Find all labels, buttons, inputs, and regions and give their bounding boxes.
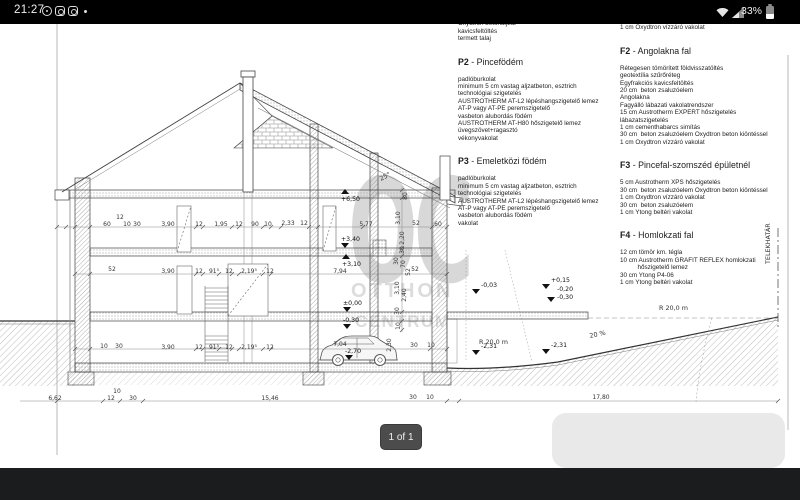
spec-section-heading: F2 - Angolakna fal <box>620 47 786 56</box>
level-marker-triangle <box>542 284 550 289</box>
dimension-label: 52 <box>108 266 116 273</box>
camera-app-notification-icon <box>55 6 65 16</box>
dimension-label: 17,80 <box>592 394 609 401</box>
level-marker-triangle <box>341 243 349 248</box>
spec-line: 30 cm beton zsaluzóelem Oxydtron beton k… <box>620 131 786 138</box>
spec-line: üvegszövet+ragasztó <box>458 127 616 134</box>
spec-line: 30 cm beton zsaluzóelem <box>620 202 786 209</box>
dimension-label: 60 <box>103 221 111 228</box>
spec-line: padlóburkolat <box>458 175 616 182</box>
dimension-label: 2,33 <box>281 220 295 227</box>
spec-line: vékonyvakolat <box>458 135 616 142</box>
level-marker-triangle <box>547 297 555 302</box>
dimension-label: 91⁵ <box>209 268 220 275</box>
level-marker-triangle <box>472 289 480 294</box>
dimension-label: 90 <box>251 221 259 228</box>
spec-line: AT-P vagy AT-PE peremszigetelő <box>458 205 616 212</box>
spec-line: geotextília szűrőréteg <box>620 72 786 79</box>
spec-line: vakolat <box>458 220 616 227</box>
spec-column-p: AT-P vagy AT-PE peremszigetelőOxydtron b… <box>458 13 616 227</box>
level-marker-label: -2,31 <box>481 343 497 350</box>
battery-icon <box>766 6 774 19</box>
spec-line: AT-P vagy AT-PE peremszigetelő <box>458 105 616 112</box>
spec-line: minimum 5 cm vastag aljzatbeton, esztric… <box>458 183 616 190</box>
spec-line: Rétegesen tömörített földvisszatöltés <box>620 65 786 72</box>
dimension-label: 7,94 <box>333 268 347 275</box>
level-marker-label: -0,20 <box>557 286 573 293</box>
dimension-label: 30 <box>393 257 400 265</box>
spec-line: 15 cm Austrotherm EXPERT hőszigetelés <box>620 109 786 116</box>
spec-section-heading: F3 - Pincefal-szomszéd épületnél <box>620 161 786 170</box>
annotation-label: 25° <box>378 170 392 182</box>
spec-line: technológiai szigetelés <box>458 90 616 97</box>
level-marker-triangle <box>343 324 351 329</box>
dimension-label: 5,77 <box>359 221 373 228</box>
spec-line: padlóburkolat <box>458 76 616 83</box>
spec-line: 1 cm Oxydtron vízzáró vakolat <box>620 139 786 146</box>
spec-line: 10 cm Austrotherm GRAFIT REFLEX homlokza… <box>620 257 786 264</box>
level-marker-triangle <box>343 307 351 312</box>
spec-line: AUSTROTHERM AT-L2 lépéshangszigetelő lem… <box>458 98 616 105</box>
dimension-label: 2,40 <box>401 288 408 302</box>
level-marker-label: +6,50 <box>341 196 360 203</box>
level-marker-label: +3,10 <box>342 261 361 268</box>
spec-section-heading: P3 - Emeletközi födém <box>458 157 616 166</box>
spec-line: AUSTROTHERM AT-L2 lépéshangszigetelő lem… <box>458 198 616 205</box>
spec-line: Egyfrakciós kavicsfeltöltés <box>620 80 786 87</box>
dimension-label: 12 <box>116 214 124 221</box>
spec-line: Angolakna <box>620 94 786 101</box>
spec-line: 30 cm beton zsaluzóelem Oxydtron beton k… <box>620 187 786 194</box>
level-marker-label: +3,40 <box>341 236 360 243</box>
spec-line: 1 cm Ytong beltéri vakolat <box>620 279 786 286</box>
spec-line: vasbeton alubordás födém <box>458 113 616 120</box>
spec-line: vasbeton alubordás födém <box>458 212 616 219</box>
spec-line: 1 cm Oxydtron vízzáró vakolat <box>620 24 786 31</box>
spec-line: hőszigetelő lemez <box>620 264 786 271</box>
dimension-label: 60 <box>434 221 442 228</box>
spec-line: kavicsfeltöltés <box>458 28 616 35</box>
dimension-label: 2,20 <box>399 231 406 245</box>
dimension-label: 52 <box>405 268 412 276</box>
spec-line: technológiai szigetelés <box>458 190 616 197</box>
spec-line: termett talaj <box>458 35 616 42</box>
dimension-label: 30 <box>115 343 123 350</box>
spec-line: 12 cm tömör km. tégla <box>620 249 786 256</box>
dimension-label: 30 <box>409 394 417 401</box>
dimension-label: 30 <box>410 342 418 349</box>
dimension-label: 12 <box>266 268 274 275</box>
level-marker-label: +0,15 <box>551 277 570 284</box>
level-marker-label: -0,03 <box>481 282 497 289</box>
spec-line: Fagyálló lábazati vakolatrendszer <box>620 102 786 109</box>
dimension-label: 12 <box>107 395 115 402</box>
level-marker-label: -2,70 <box>345 348 361 355</box>
annotation-label: R 20,0 m <box>659 304 688 312</box>
pdf-document-view[interactable]: OC OTTHON CENTRUM <box>0 0 800 468</box>
dimension-label: 3,10 <box>395 211 402 225</box>
spec-section-heading: P2 - Pincefödém <box>458 58 616 67</box>
spec-line: minimum 5 cm vastag aljzatbeton, esztric… <box>458 83 616 90</box>
camera-app-notification-icon-2 <box>68 6 78 16</box>
dimension-label: 30 <box>133 221 141 228</box>
level-marker-label: -0,30 <box>557 294 573 301</box>
spec-line: 30 cm Ytong P4-06 <box>620 272 786 279</box>
status-bar: 21:27 33% <box>0 0 800 24</box>
dimension-label: 2,19⁵ <box>241 344 257 351</box>
level-marker-label: -2,31 <box>551 342 567 349</box>
wifi-icon <box>716 7 729 18</box>
dimension-label: 10 <box>123 221 131 228</box>
level-marker-triangle <box>542 349 550 354</box>
annotation-label: 20 % <box>589 329 607 340</box>
dimension-label: 3,90 <box>161 344 175 351</box>
spec-line: 1 cm Oxydtron vízzáró vakolat <box>620 194 786 201</box>
dimension-label: 2,19⁵ <box>241 268 257 275</box>
level-marker-label: ±0,00 <box>343 300 362 307</box>
dimension-label: 12 <box>300 220 308 227</box>
clock: 21:27 <box>14 4 44 16</box>
spec-line: 1 cm cementhabarcs simítás <box>620 124 786 131</box>
level-marker-label: -0,30 <box>343 317 359 324</box>
dimension-label: 3,90 <box>161 221 175 228</box>
dimension-label: 15,46 <box>261 395 278 402</box>
more-notifications-dot <box>84 10 87 13</box>
battery-percent: 33% <box>741 5 762 17</box>
spec-line: 1 cm Ytong beltéri vakolat <box>620 209 786 216</box>
dimension-label: 2,30 <box>386 338 393 352</box>
page-indicator-badge: 1 of 1 <box>380 424 422 450</box>
dimension-label: 70 <box>400 260 407 268</box>
navigation-bar <box>0 468 800 500</box>
spec-line: lábazatszigetelés <box>620 117 786 124</box>
dimension-label: 1,95 <box>214 221 228 228</box>
spec-line: AUSTROTHERM AT-H80 hőszigetelő lemez <box>458 120 616 127</box>
dimension-label: 30 <box>129 395 137 402</box>
spec-column-f: 30 cm beton zsaluzóelem Oxydtron beton k… <box>620 17 786 286</box>
spec-line: 5 cm Austrotherm XPS hőszigetelés <box>620 179 786 186</box>
dimension-label: 7,04 <box>333 341 347 348</box>
roof <box>62 83 455 208</box>
messenger-notification-icon <box>42 6 52 16</box>
bottom-sheet-panel[interactable] <box>552 413 785 468</box>
dimension-label: 10 <box>100 343 108 350</box>
spec-line: 20 cm beton zsaluzóelem <box>620 87 786 94</box>
dimension-label: 10 <box>395 322 402 330</box>
dimension-label: 52 <box>412 220 420 227</box>
dimension-label: 10 <box>113 388 121 395</box>
dimension-label: 52 <box>411 266 419 273</box>
dimension-label: 3,10 <box>394 281 401 295</box>
dimension-label: 3,90 <box>161 268 175 275</box>
dimension-label: 6,62 <box>48 395 62 402</box>
dimension-label: 80 <box>402 192 409 200</box>
dimension-label: 10 <box>426 394 434 401</box>
phone-screen: OC OTTHON CENTRUM <box>0 0 800 500</box>
level-marker-triangle <box>472 350 480 355</box>
spec-section-heading: F4 - Homlokzati fal <box>620 231 786 240</box>
dimension-label: 12 <box>225 344 233 351</box>
